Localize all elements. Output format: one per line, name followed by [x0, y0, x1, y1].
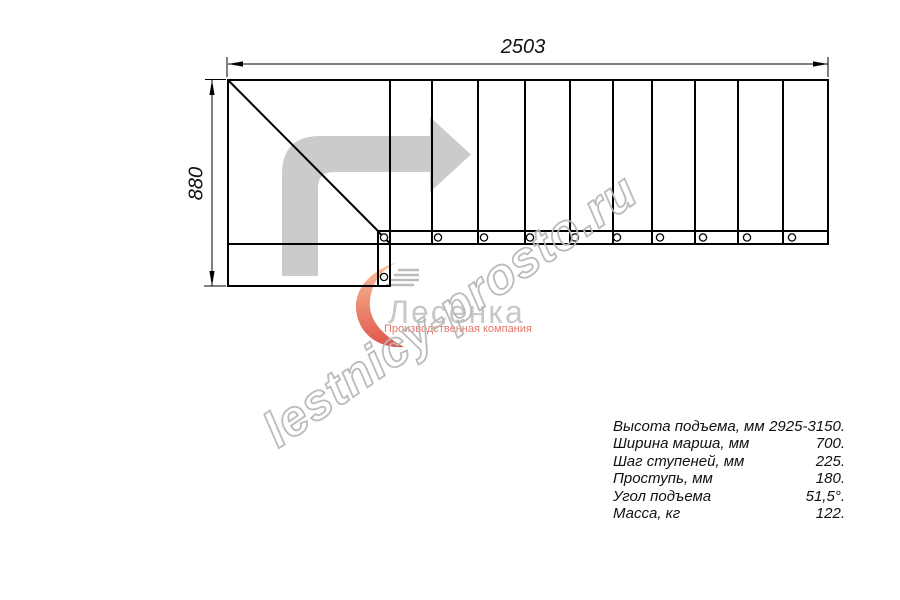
- spec-row: Высота подъема, мм 2925-3150.: [613, 418, 845, 435]
- spec-row: Угол подъема 51,5°.: [613, 488, 845, 505]
- spec-label: Масса, кг: [613, 505, 680, 522]
- spec-row: Шаг ступеней, мм 225.: [613, 453, 845, 470]
- spec-value: 51,5°.: [806, 488, 845, 505]
- spec-label: Ширина марша, мм: [613, 435, 749, 452]
- spec-row: Проступь, мм 180.: [613, 470, 845, 487]
- spec-row: Масса, кг 122.: [613, 505, 845, 522]
- spec-table: Высота подъема, мм 2925-3150. Ширина мар…: [613, 418, 845, 522]
- spec-row: Ширина марша, мм 700.: [613, 435, 845, 452]
- width-dimension-label: 2503: [473, 36, 573, 59]
- spec-value: 180.: [816, 470, 845, 487]
- spec-label: Шаг ступеней, мм: [613, 453, 744, 470]
- spec-value: 122.: [816, 505, 845, 522]
- spec-label: Угол подъема: [613, 488, 711, 505]
- spec-value: 225.: [816, 453, 845, 470]
- spec-label: Высота подъема, мм: [613, 418, 765, 435]
- direction-arrow-icon: [282, 117, 471, 276]
- spec-label: Проступь, мм: [613, 470, 713, 487]
- width-dimension-line: [227, 57, 828, 77]
- stair-plan-page: 2503 880 Лесенка Производственная компан…: [0, 0, 900, 600]
- spec-value: 700.: [816, 435, 845, 452]
- height-dimension-label: 880: [186, 134, 209, 234]
- spec-value: 2925-3150.: [769, 418, 845, 435]
